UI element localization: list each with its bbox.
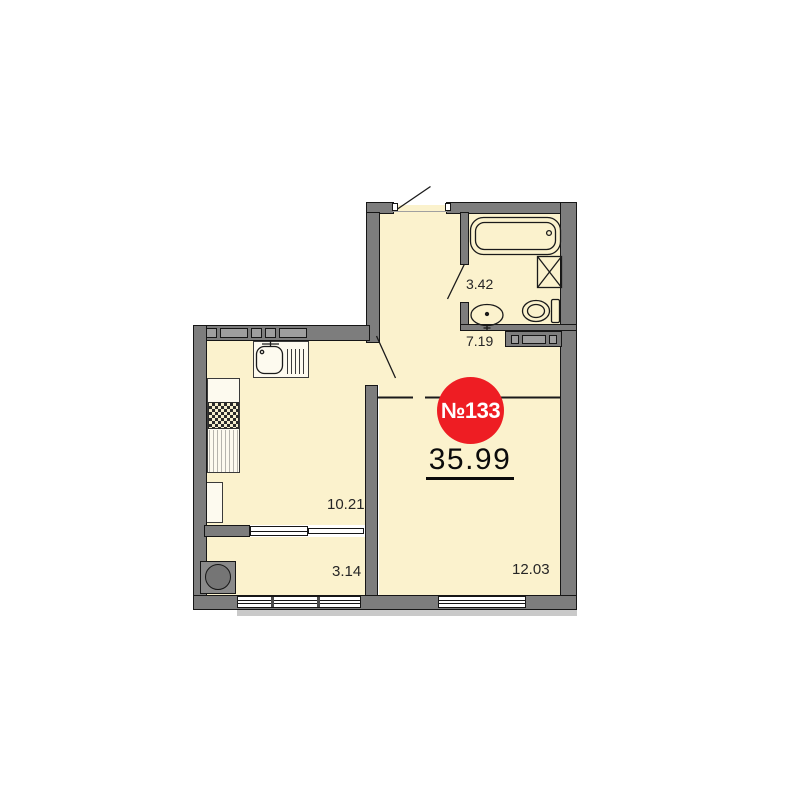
room-area-label-kitchen: 10.21 bbox=[327, 496, 365, 513]
room-area-label-hallway: 7.19 bbox=[466, 333, 493, 349]
fixtures-overlay bbox=[0, 0, 800, 800]
shower-box-icon bbox=[538, 257, 562, 288]
toilet-icon bbox=[523, 300, 560, 323]
total-area: 35.99 bbox=[415, 443, 525, 477]
kitchen-sink-icon bbox=[257, 341, 283, 374]
room-area-label-balcony: 3.14 bbox=[332, 563, 361, 580]
unit-number-badge[interactable]: №133 bbox=[437, 377, 504, 444]
room-area-label-living-room: 12.03 bbox=[512, 561, 550, 578]
floor-plan: 3.42 7.19 10.21 3.14 12.03 №133 35.99 bbox=[0, 0, 800, 800]
bathroom-door-icon bbox=[448, 264, 465, 299]
room-area-label-bathroom: 3.42 bbox=[466, 276, 493, 292]
washbasin-icon bbox=[471, 305, 503, 332]
unit-number-label: №133 bbox=[441, 398, 500, 424]
total-area-label: 35.99 bbox=[426, 443, 515, 480]
entrance-door-icon bbox=[393, 187, 447, 212]
kitchen-door-icon bbox=[377, 336, 396, 378]
bathtub-icon bbox=[471, 218, 561, 255]
